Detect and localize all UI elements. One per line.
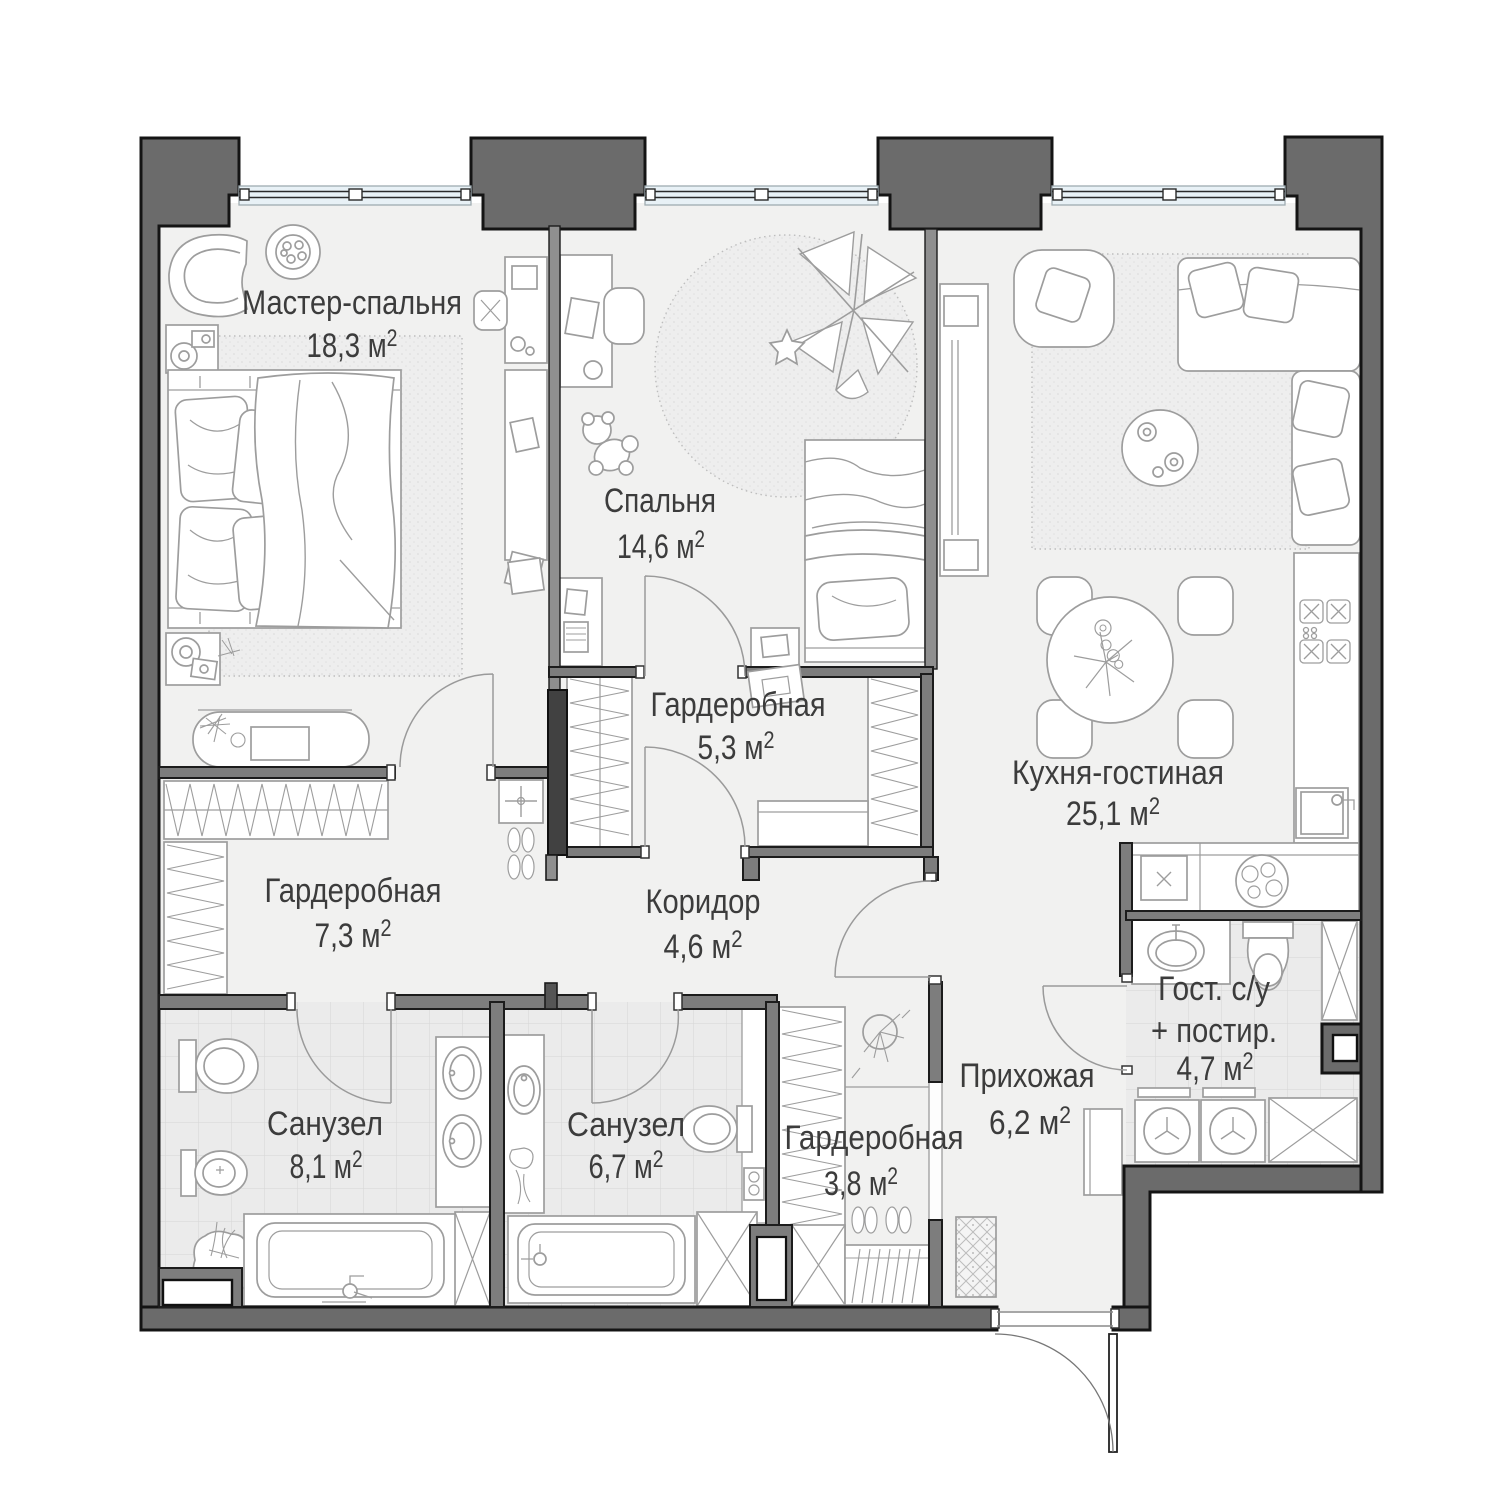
- svg-text:5,3 м2: 5,3 м2: [698, 727, 775, 767]
- svg-text:Кухня-гостиная: Кухня-гостиная: [1012, 754, 1224, 792]
- svg-text:Гардеробная: Гардеробная: [651, 686, 826, 724]
- svg-text:Коридор: Коридор: [646, 883, 761, 921]
- svg-text:Спальня: Спальня: [604, 482, 716, 520]
- svg-text:18,3 м2: 18,3 м2: [307, 325, 398, 365]
- svg-text:Гардеробная: Гардеробная: [785, 1119, 964, 1157]
- svg-text:+ постир.: + постир.: [1151, 1012, 1277, 1050]
- svg-text:Санузел: Санузел: [267, 1105, 383, 1143]
- svg-text:6,2 м2: 6,2 м2: [989, 1102, 1071, 1142]
- svg-text:14,6 м2: 14,6 м2: [617, 526, 705, 566]
- svg-text:Гост. с/у: Гост. с/у: [1158, 970, 1270, 1008]
- svg-text:25,1 м2: 25,1 м2: [1066, 793, 1160, 833]
- svg-text:3,8 м2: 3,8 м2: [824, 1163, 898, 1203]
- svg-text:4,6 м2: 4,6 м2: [664, 926, 743, 966]
- svg-text:7,3 м2: 7,3 м2: [315, 915, 392, 955]
- svg-text:Санузел: Санузел: [567, 1106, 685, 1144]
- svg-text:Мастер-спальня: Мастер-спальня: [242, 284, 462, 322]
- svg-text:6,7 м2: 6,7 м2: [589, 1146, 664, 1186]
- svg-text:Гардеробная: Гардеробная: [265, 872, 442, 910]
- svg-text:4,7 м2: 4,7 м2: [1177, 1048, 1254, 1088]
- svg-text:8,1 м2: 8,1 м2: [290, 1146, 363, 1186]
- svg-text:Прихожая: Прихожая: [960, 1057, 1095, 1095]
